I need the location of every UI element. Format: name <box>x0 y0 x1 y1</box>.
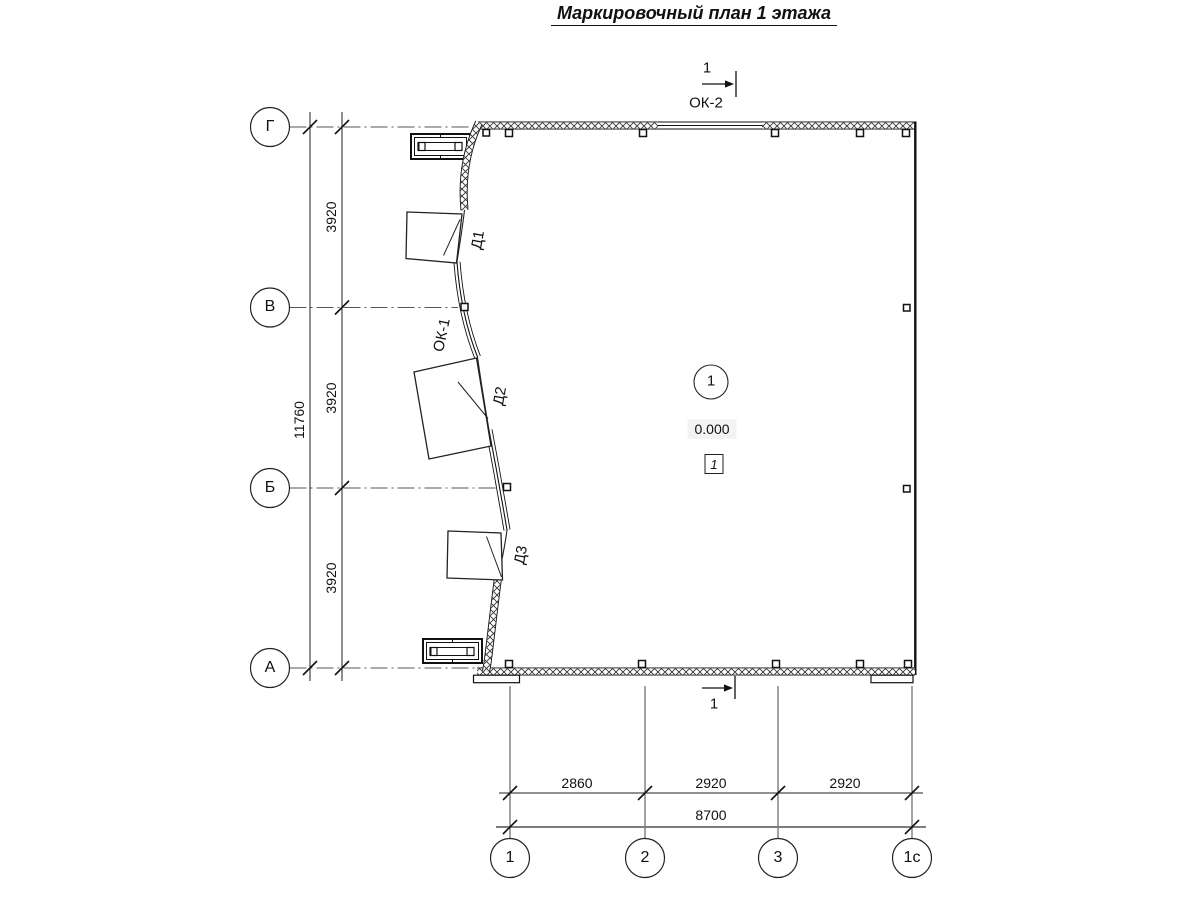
floor-plan-canvas: Маркировочный план 1 этажа Г В Б А 1 2 3… <box>0 0 1200 900</box>
section-number-top: 1 <box>703 61 711 76</box>
dim-bottom-segment-3: 2920 <box>829 776 860 790</box>
section-number-bottom: 1 <box>710 697 718 712</box>
dim-bottom-total: 8700 <box>695 808 726 822</box>
door-d2 <box>414 358 491 459</box>
door-d3 <box>447 531 503 580</box>
axis-row-label-b: Б <box>265 480 276 496</box>
axis-col-label-2: 2 <box>641 850 650 866</box>
window-band-lower <box>489 430 507 530</box>
window-ok2-label: ОК-2 <box>689 96 723 111</box>
radiator-top <box>411 134 470 159</box>
dim-left-total: 11760 <box>292 401 306 439</box>
axis-col-label-3: 3 <box>774 850 783 866</box>
axis-row-label-a: А <box>265 660 276 676</box>
axis-col-label-1c: 1с <box>904 850 921 866</box>
axis-row-label-v: В <box>265 299 276 315</box>
bottom-wall <box>474 672 916 683</box>
dim-left-segment-3: 3920 <box>324 562 338 593</box>
window-ok2-band <box>658 122 762 129</box>
curved-facade-top <box>464 123 479 211</box>
section-arrow-bottom <box>702 676 735 699</box>
door-d2-label: Д2 <box>491 386 509 407</box>
page-title: Маркировочный план 1 этажа <box>551 4 837 26</box>
door-d1 <box>406 212 462 263</box>
curved-facade-bottom <box>486 578 498 672</box>
dim-left-segment-2: 3920 <box>324 382 338 413</box>
dim-bottom-segment-1: 2860 <box>561 776 592 790</box>
room-number: 1 <box>707 374 715 389</box>
door-d1-label: Д1 <box>469 230 487 251</box>
axis-row-label-g: Г <box>266 119 275 135</box>
grid-bubbles <box>251 108 932 878</box>
radiator-bottom <box>423 639 482 663</box>
column-markers <box>461 130 912 668</box>
room-finish-type-box: 1 <box>705 454 724 474</box>
plan-linework <box>0 0 1200 900</box>
door-d3-label: Д3 <box>512 545 530 566</box>
axis-col-label-1: 1 <box>506 850 515 866</box>
dim-bottom-segment-2: 2920 <box>695 776 726 790</box>
dim-left-segment-1: 3920 <box>324 201 338 232</box>
room-elevation: 0.000 <box>687 419 736 439</box>
